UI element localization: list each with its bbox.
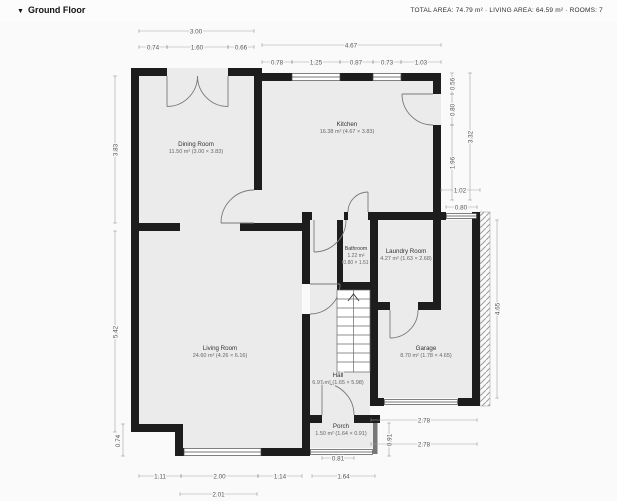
collapse-triangle-icon: ▼ bbox=[17, 8, 24, 15]
garage-door bbox=[385, 400, 458, 405]
room-label-laundry: Laundry Room bbox=[386, 248, 427, 255]
dimension-label: 3.00 bbox=[190, 29, 203, 36]
dimension-label: 1.96 bbox=[450, 156, 457, 169]
dimension-label: 0.74 bbox=[147, 45, 160, 52]
room-label-porch: Porch bbox=[333, 423, 350, 430]
living-room-floor bbox=[139, 231, 302, 448]
dimension-label: 1.03 bbox=[415, 60, 428, 67]
dimension-label: 0.80 bbox=[450, 103, 457, 116]
room-area-living: 24.60 m² (4.26 × 6.16) bbox=[193, 353, 248, 359]
dimension-label: 3.32 bbox=[468, 130, 475, 143]
dimension-label: 1.60 bbox=[191, 45, 204, 52]
header-bar: ▼Ground Floor TOTAL AREA: 74.79 m² · LIV… bbox=[0, 0, 617, 22]
dimension-label: 0.87 bbox=[350, 60, 363, 67]
deck-hatch bbox=[480, 212, 490, 406]
floor-plan-canvas: Dining Room 11.50 m² (3.00 × 3.83) Kitch… bbox=[0, 0, 617, 501]
door-gap bbox=[254, 190, 262, 223]
room-label-bathroom: Bathroom bbox=[345, 246, 368, 252]
dimension-label: 5.42 bbox=[113, 325, 120, 338]
dimension-label: 1.11 bbox=[154, 474, 166, 481]
living-room-window bbox=[184, 449, 261, 456]
room-size-bathroom: 0.80 × 1.51 bbox=[343, 260, 368, 266]
dimension-label: 2.78 bbox=[418, 418, 431, 425]
porch-right-wall bbox=[373, 423, 378, 454]
door-gap bbox=[390, 302, 418, 310]
room-label-kitchen: Kitchen bbox=[337, 121, 358, 128]
dimension-label: 0.81 bbox=[332, 456, 345, 463]
kitchen-window-2 bbox=[373, 74, 401, 81]
room-label-garage: Garage bbox=[416, 345, 437, 352]
room-label-dining: Dining Room bbox=[178, 141, 214, 148]
door-gap bbox=[348, 212, 368, 220]
kitchen-floor bbox=[262, 81, 433, 223]
porch-front-window bbox=[311, 450, 373, 455]
room-area-dining: 11.50 m² (3.00 × 3.83) bbox=[169, 149, 223, 155]
room-area-garage: 8.70 m² (1.78 × 4.65) bbox=[400, 353, 452, 359]
door-gap bbox=[322, 415, 354, 423]
garage-side-opening bbox=[447, 214, 477, 219]
room-area-bathroom: 1.22 m² bbox=[348, 253, 365, 259]
room-area-porch: 1.50 m² (1.64 × 0.91) bbox=[315, 431, 367, 437]
dimension-label: 0.73 bbox=[381, 60, 394, 67]
door-gap bbox=[180, 223, 240, 231]
floor-title: Ground Floor bbox=[28, 5, 86, 15]
dimension-label: 2.00 bbox=[213, 474, 226, 481]
dimension-label: 0.80 bbox=[455, 205, 468, 212]
kitchen-window-1 bbox=[292, 74, 340, 81]
door-gap bbox=[433, 94, 441, 125]
dimension-label: 2.78 bbox=[418, 442, 431, 449]
dimension-label: 4.65 bbox=[495, 302, 502, 315]
dimension-label: 0.66 bbox=[235, 45, 248, 52]
staircase bbox=[337, 290, 370, 372]
dimension-label: 1.64 bbox=[337, 474, 350, 481]
dimension-label: 3.83 bbox=[113, 143, 120, 156]
dimension-label: 2.01 bbox=[212, 492, 225, 499]
dimension-label: 4.67 bbox=[345, 43, 358, 50]
dimension-label: 0.74 bbox=[115, 434, 122, 447]
room-label-hall: Hall bbox=[333, 372, 344, 379]
door-gap bbox=[167, 68, 228, 76]
area-summary: TOTAL AREA: 74.79 m² · LIVING AREA: 64.5… bbox=[410, 7, 603, 14]
room-area-hall: 6.97 m² (1.65 × 5.98) bbox=[312, 380, 364, 386]
dimension-label: 1.14 bbox=[274, 474, 287, 481]
dimension-label: 1.02 bbox=[454, 188, 467, 195]
floor-section-toggle[interactable]: ▼Ground Floor bbox=[17, 5, 85, 15]
room-area-laundry: 4.27 m² (1.63 × 2.68) bbox=[380, 256, 432, 262]
dimension-label: 1.25 bbox=[310, 60, 323, 67]
dimension-label: 0.78 bbox=[271, 60, 284, 67]
dimension-label: 0.56 bbox=[450, 77, 457, 90]
door-gap bbox=[312, 212, 344, 220]
room-label-living: Living Room bbox=[203, 345, 237, 352]
room-area-kitchen: 16.38 m² (4.67 × 3.83) bbox=[320, 129, 375, 135]
